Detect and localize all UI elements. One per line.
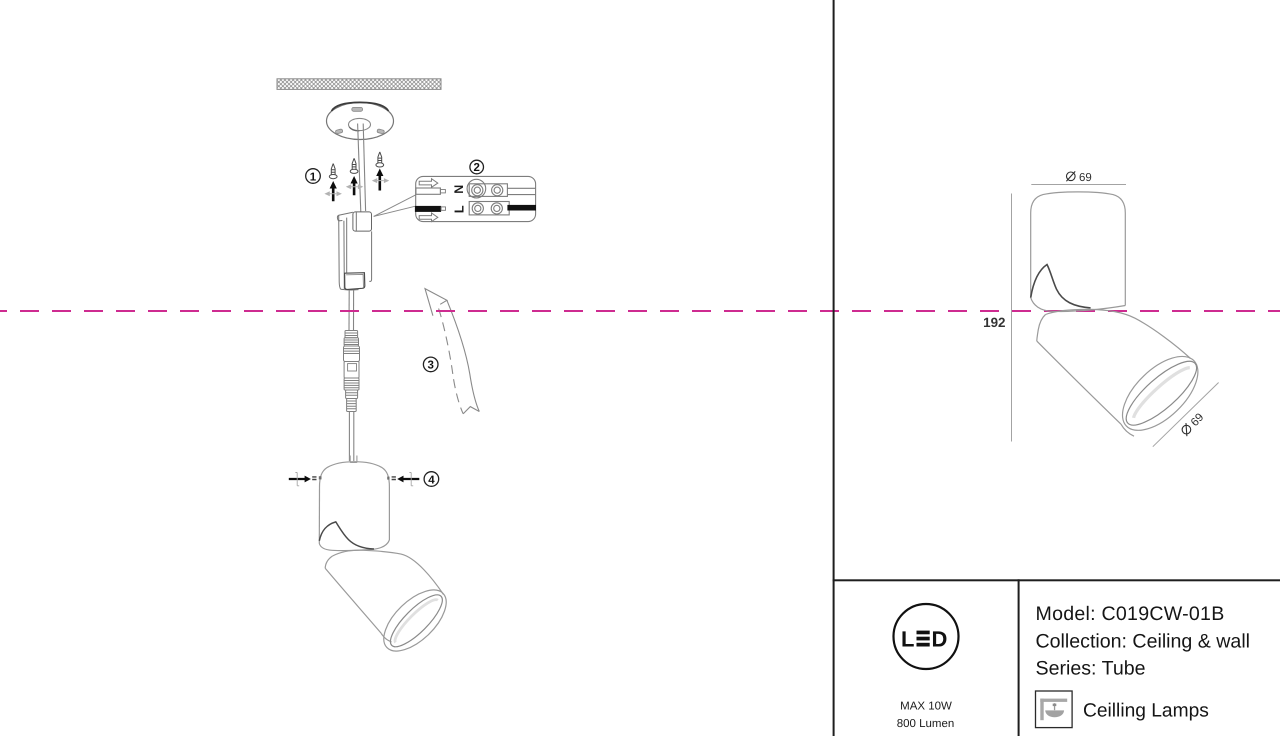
svg-text:69: 69 [1079, 172, 1092, 184]
svg-text:Collection: Ceiling & wall: Collection: Ceiling & wall [1036, 631, 1251, 653]
svg-text:MAX 10W: MAX 10W [900, 701, 952, 713]
svg-text:L: L [901, 627, 914, 652]
svg-text:69: 69 [1189, 411, 1207, 429]
svg-text:4: 4 [428, 474, 435, 486]
svg-text:3: 3 [427, 360, 433, 372]
svg-text:1: 1 [310, 171, 317, 183]
svg-text:Ceilling Lamps: Ceilling Lamps [1083, 701, 1209, 722]
svg-text:2: 2 [473, 162, 479, 174]
svg-text:L: L [451, 205, 466, 213]
svg-text:192: 192 [983, 315, 1005, 330]
svg-text:Series: Tube: Series: Tube [1036, 658, 1146, 680]
svg-text:Model: C019CW-01B: Model: C019CW-01B [1036, 603, 1225, 625]
svg-text:N: N [452, 185, 466, 194]
svg-text:800 Lumen: 800 Lumen [897, 718, 955, 730]
svg-text:D: D [932, 627, 948, 652]
